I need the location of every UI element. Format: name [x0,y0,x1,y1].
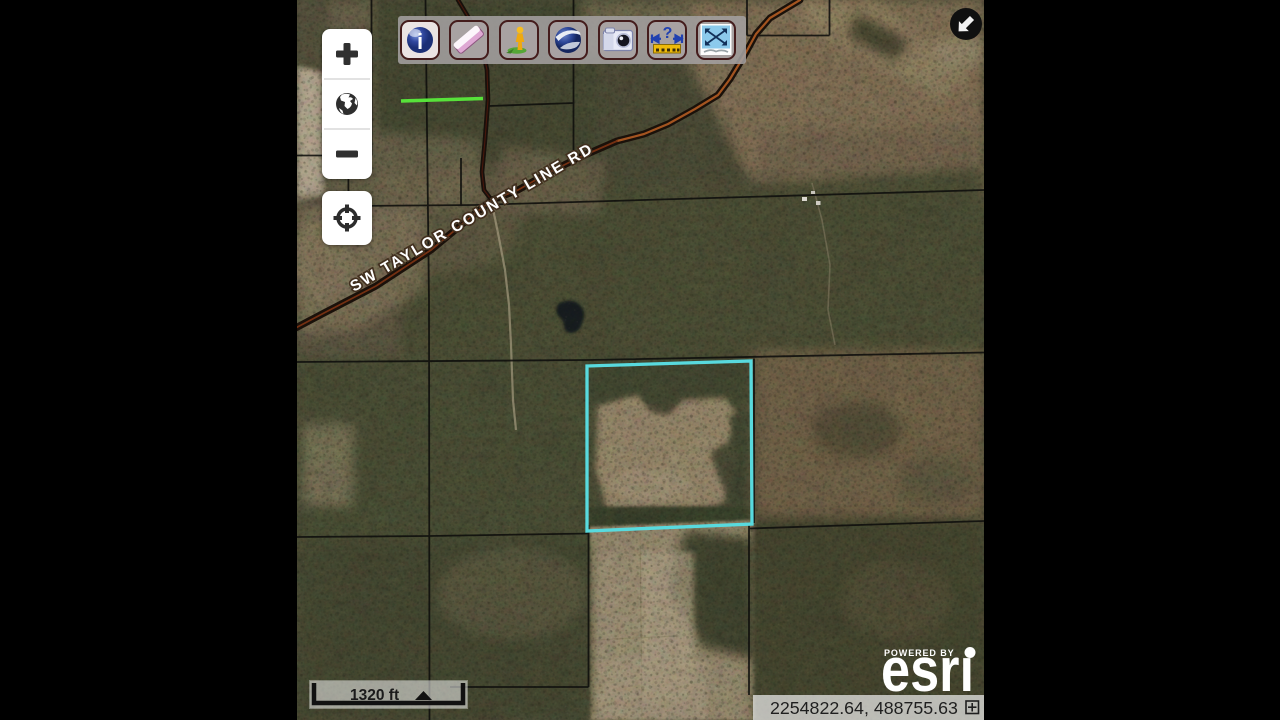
svg-text:2254822.64, 488755.63: 2254822.64, 488755.63 [770,698,958,718]
svg-text:?: ? [663,25,673,42]
svg-text:1320 ft: 1320 ft [350,687,399,704]
svg-text:i: i [417,29,423,54]
svg-text:esrı: esrı [881,644,974,696]
